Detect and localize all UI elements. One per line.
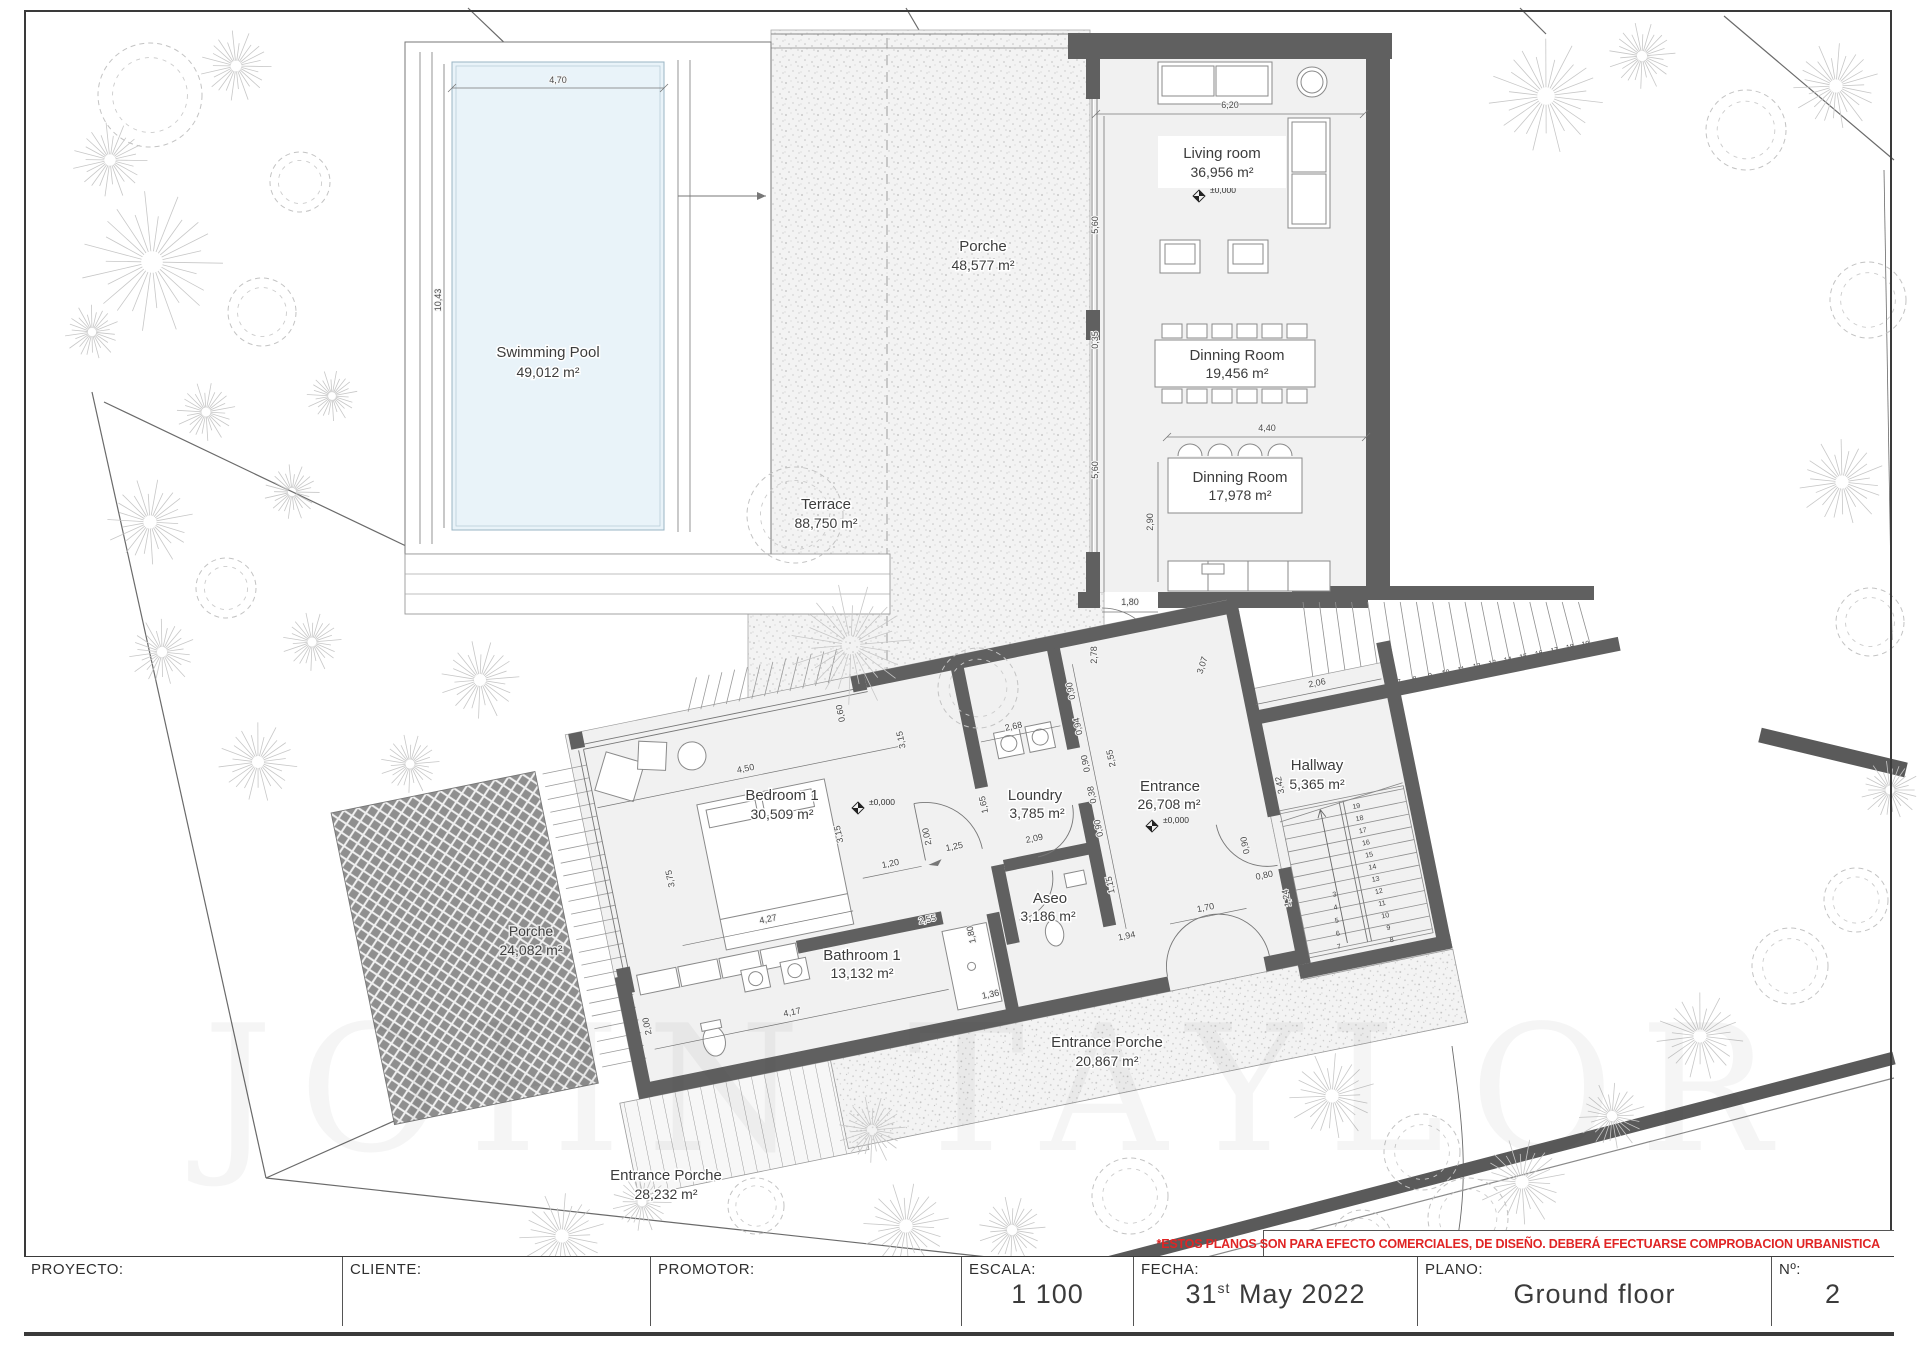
title-block: PROYECTO: CLIENTE: PROMOTOR: ESCALA: 1 1… (24, 1256, 1894, 1326)
cliente-label: CLIENTE: (350, 1261, 422, 1278)
fecha-value: 31st May 2022 (1134, 1279, 1417, 1310)
disclaimer-text: *ESTOS PLANOS SON PARA EFECTO COMERCIALE… (1157, 1237, 1880, 1251)
escala-value: 1 100 (962, 1279, 1133, 1310)
disclaimer-strip: *ESTOS PLANOS SON PARA EFECTO COMERCIALE… (1263, 1230, 1894, 1256)
titleblock-cell-plano: PLANO: Ground floor (1418, 1257, 1772, 1326)
plano-value: Ground floor (1418, 1279, 1771, 1310)
titleblock-cell-numero: Nº: 2 (1772, 1257, 1894, 1326)
floor-plan-page: 2345678910111213141516171819 (0, 0, 1920, 1358)
titleblock-cell-fecha: FECHA: 31st May 2022 (1134, 1257, 1418, 1326)
titleblock-cell-promotor: PROMOTOR: (651, 1257, 962, 1326)
numero-label: Nº: (1779, 1261, 1801, 1278)
titleblock-cell-proyecto: PROYECTO: (24, 1257, 343, 1326)
fecha-label: FECHA: (1141, 1261, 1199, 1278)
drawing-frame (24, 10, 1892, 1326)
promotor-label: PROMOTOR: (658, 1261, 755, 1278)
titleblock-cell-escala: ESCALA: 1 100 (962, 1257, 1134, 1326)
numero-value: 2 (1772, 1279, 1894, 1310)
plano-label: PLANO: (1425, 1261, 1483, 1278)
titleblock-cell-cliente: CLIENTE: (343, 1257, 651, 1326)
drawing-frame-bottom (24, 1332, 1894, 1336)
proyecto-label: PROYECTO: (31, 1261, 124, 1278)
escala-label: ESCALA: (969, 1261, 1036, 1278)
